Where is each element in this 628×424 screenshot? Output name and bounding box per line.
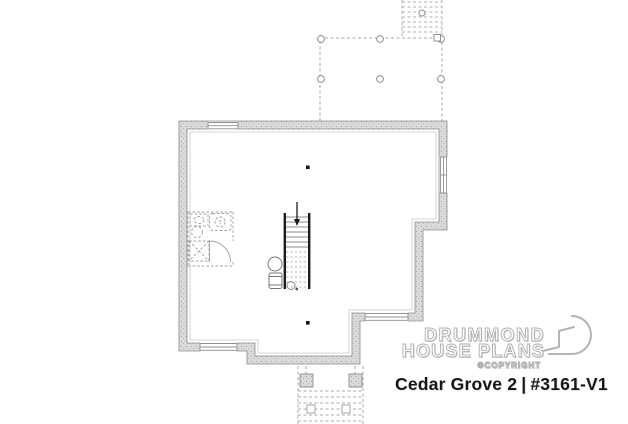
window-bottom-right [365,313,408,322]
structural-post-icon [306,166,310,170]
main-staircase [284,202,311,289]
logo-text-line2: HOUSE PLANS [360,341,545,362]
sink-icon [194,217,204,224]
deck-stairs-top [402,0,442,37]
deck-posts [318,36,445,83]
plan-name: Cedar Grove 2 [395,374,517,394]
deck-post-icon [318,76,325,83]
deck-post-icon [438,76,445,83]
shower-cross-icon [189,241,209,261]
vanity-icon [190,214,208,226]
stair-post-icon [419,10,425,16]
deck-post-icon [318,36,325,43]
toilet-icon [192,227,203,238]
floor-drain-icon [287,282,295,290]
laundry-tub-label: T [218,220,222,226]
porch-post-icon [300,374,313,387]
window-bottom-left [200,343,237,352]
drummond-logo-mark-icon [543,316,591,354]
window-right [440,157,448,193]
electrical-panel-icon [269,273,282,289]
future-bathroom [188,212,233,266]
porch-post-icon [349,374,362,387]
stair-stringer [308,213,310,289]
porch-footing-icon [307,405,315,413]
floor-plan-page: T [0,0,628,424]
bathroom-door-swing [210,241,231,262]
plan-code: #3161-V1 [530,374,608,394]
porch-footing-icon [342,405,350,413]
copyright-label: ©COPYRIGHT [400,361,541,370]
window-top [208,122,238,131]
stair-footing-icon [434,35,441,42]
water-heater-icon [268,257,282,271]
structural-post-icon [306,321,310,325]
drain-dot-icon [295,288,298,291]
deck-post-icon [377,36,384,43]
stair-stringer [284,213,286,289]
utility-area [268,257,298,290]
deck-post-icon [377,76,384,83]
title-divider: | [517,374,530,394]
plan-title: Cedar Grove 2|#3161-V1 [395,374,583,395]
